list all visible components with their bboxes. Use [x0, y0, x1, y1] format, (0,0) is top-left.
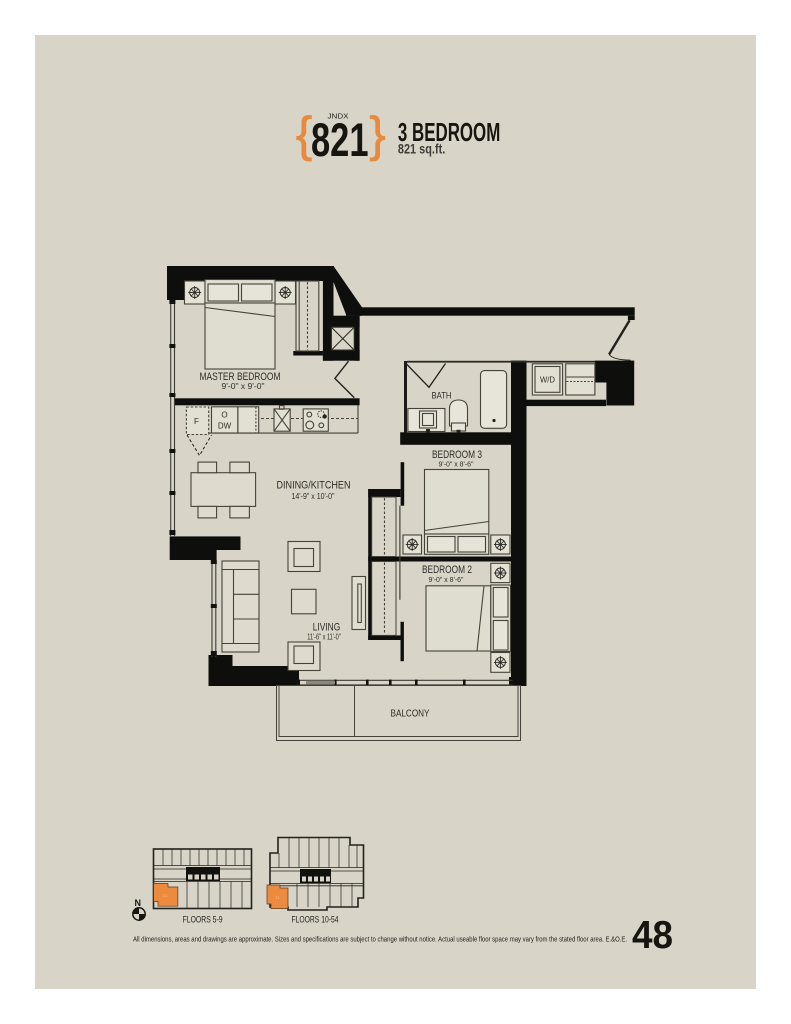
svg-text:9'-0" x 8'-6": 9'-0" x 8'-6": [429, 575, 464, 584]
svg-text:All dimensions, areas and draw: All dimensions, areas and drawings are a…: [133, 937, 627, 944]
svg-text:821 sq.ft.: 821 sq.ft.: [398, 142, 445, 157]
svg-text:O: O: [221, 411, 227, 420]
svg-text:11'-6" x 11'-0": 11'-6" x 11'-0": [307, 633, 341, 642]
svg-text:BALCONY: BALCONY: [391, 708, 430, 720]
svg-text:BATH: BATH: [432, 390, 452, 400]
svg-text:DINING/KITCHEN: DINING/KITCHEN: [277, 480, 351, 492]
svg-text:FLOORS 5-9: FLOORS 5-9: [183, 915, 223, 925]
svg-text:{: {: [296, 108, 312, 162]
svg-text:FLOORS 10-54: FLOORS 10-54: [292, 915, 339, 925]
svg-text:11: 11: [163, 893, 168, 898]
svg-text:N: N: [135, 898, 142, 908]
svg-text:9'-0" x 8'-6": 9'-0" x 8'-6": [439, 460, 474, 469]
svg-text:9'-0" x 9'-0": 9'-0" x 9'-0": [222, 382, 265, 391]
svg-text:14'-9" x 10'-0": 14'-9" x 10'-0": [292, 492, 335, 501]
svg-text:}: }: [369, 108, 385, 162]
svg-text:48: 48: [632, 914, 673, 957]
svg-text:F: F: [194, 417, 199, 426]
svg-text:11: 11: [275, 895, 280, 900]
svg-text:DW: DW: [218, 422, 232, 431]
svg-text:W/D: W/D: [540, 376, 555, 385]
svg-text:821: 821: [311, 113, 369, 166]
